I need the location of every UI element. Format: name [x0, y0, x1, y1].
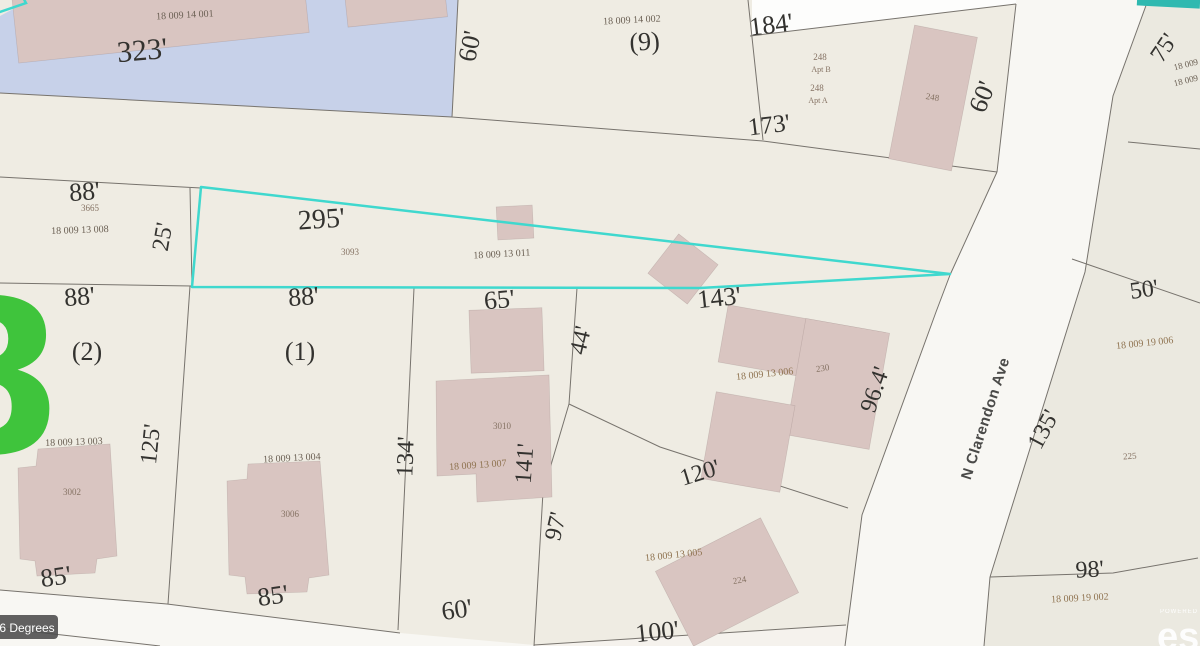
- building-3006: [227, 461, 329, 594]
- dimension-88-lot1: 88': [287, 281, 320, 312]
- address-230: 230: [815, 362, 830, 374]
- lot-number-1: (1): [285, 337, 315, 366]
- dimension-125: 125': [136, 423, 166, 466]
- dimension-173: 173': [747, 110, 792, 142]
- dimension-85-lot2: 85': [39, 560, 73, 593]
- lot-number-2: (2): [72, 337, 102, 366]
- green-watermark-digit: 8: [0, 255, 63, 502]
- dimension-88-lot2: 88': [63, 281, 96, 312]
- rotation-badge-text: 6 Degrees: [0, 621, 55, 635]
- dimension-323: 323': [116, 32, 169, 69]
- address-apt-a: Apt A: [808, 96, 828, 105]
- dimension-50: 50': [1128, 275, 1160, 305]
- esri-attribution: POWERED BY esri: [1157, 609, 1200, 646]
- address-3093: 3093: [341, 247, 360, 257]
- address-3665: 3665: [81, 203, 100, 213]
- lot-number-9: (9): [629, 26, 661, 57]
- dimension-65: 65': [483, 284, 516, 316]
- dimension-134: 134': [392, 436, 419, 477]
- address-248-unit-b: 248: [813, 52, 827, 62]
- address-3010: 3010: [493, 421, 512, 431]
- esri-logo-text: esri: [1157, 616, 1200, 646]
- powered-by-text: POWERED BY: [1160, 609, 1200, 615]
- address-apt-b: Apt B: [811, 65, 830, 74]
- map-viewport[interactable]: 8 323' 88' 25' 295' 60' 184' 173' 60' 75…: [0, 0, 1200, 646]
- dimension-98: 98': [1075, 556, 1105, 583]
- address-225: 225: [1123, 451, 1138, 462]
- rotation-badge: 6 Degrees: [0, 615, 58, 639]
- address-3006: 3006: [281, 509, 300, 519]
- parcel-id-18-009-13-003: 18 009 13 003: [45, 436, 103, 449]
- dimension-60-bottom: 60': [440, 593, 474, 626]
- parcel-map-canvas[interactable]: 8 323' 88' 25' 295' 60' 184' 173' 60' 75…: [0, 0, 1200, 646]
- dimension-143: 143': [696, 281, 742, 314]
- dimension-25: 25': [148, 221, 179, 253]
- dimension-85-lot1: 85': [256, 579, 290, 612]
- address-248-unit-a: 248: [810, 83, 824, 93]
- dimension-100: 100': [634, 615, 680, 646]
- dimension-184: 184': [748, 8, 795, 42]
- dimension-141: 141': [511, 442, 540, 484]
- address-3002: 3002: [63, 487, 81, 497]
- parcel-id-18-009-13-008: 18 009 13 008: [51, 224, 109, 237]
- building-3010-garage: [469, 308, 544, 374]
- dimension-295: 295': [297, 202, 346, 236]
